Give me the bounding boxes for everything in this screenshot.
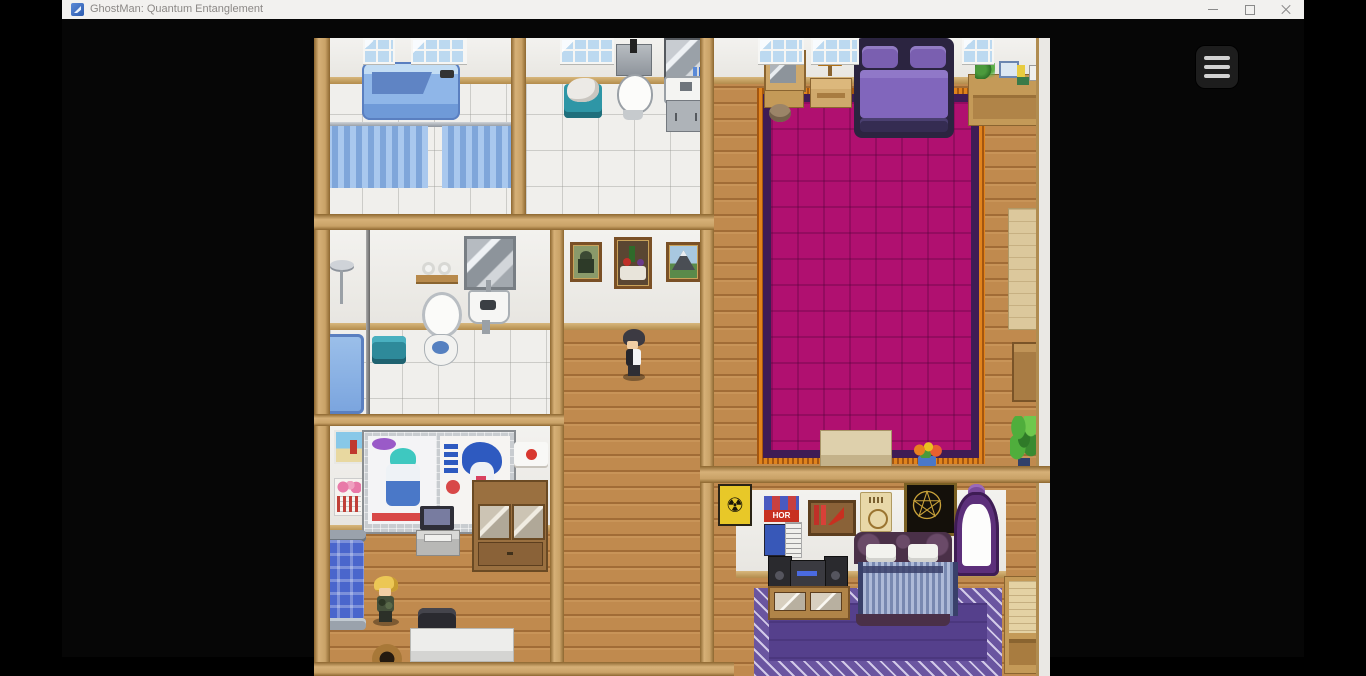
toilet-tank xyxy=(616,44,652,76)
pentagram-icon xyxy=(909,487,945,523)
torso-vest xyxy=(626,349,641,366)
beach-figure xyxy=(350,440,357,454)
title-bubble xyxy=(372,438,396,450)
wall-left-outer xyxy=(314,38,330,676)
horror-title: HOR xyxy=(764,510,799,522)
desk-plant xyxy=(975,63,995,79)
footboard xyxy=(860,118,948,132)
camo-torso xyxy=(377,596,394,612)
mirror-glass-white xyxy=(962,504,991,566)
horror-posters: HOR xyxy=(764,496,799,558)
window-3 xyxy=(560,38,614,64)
wall-horizontal-2 xyxy=(314,414,564,426)
stereo-table-body xyxy=(768,586,850,620)
app-icon xyxy=(71,3,84,16)
wall-right-outer xyxy=(1036,38,1050,676)
office-chair xyxy=(418,608,456,630)
pillow-white-2 xyxy=(908,544,938,562)
minimize-icon xyxy=(1208,9,1218,10)
anime-figure xyxy=(386,464,420,506)
face xyxy=(627,341,638,349)
poster-list xyxy=(785,522,802,558)
window-title: GhostMan: Quantum Entanglement xyxy=(90,0,263,19)
toilet-water xyxy=(432,341,449,354)
leaning-book xyxy=(828,507,844,525)
dark-haired-character xyxy=(620,329,648,381)
tall-board xyxy=(1008,208,1038,330)
screen xyxy=(424,509,450,525)
urinal-drain xyxy=(480,300,496,310)
striped-bed xyxy=(854,532,952,630)
keyboard xyxy=(424,534,452,542)
parchment-script xyxy=(869,497,883,503)
footboard-dark xyxy=(856,614,950,626)
mountain-painting xyxy=(666,242,701,282)
shower-pole xyxy=(366,218,370,416)
glass-pane-1 xyxy=(478,504,511,540)
red-book-1 xyxy=(814,505,819,525)
wall-bottom xyxy=(314,662,734,676)
window-6 xyxy=(962,38,994,64)
blond-character xyxy=(370,576,402,626)
red-stamp xyxy=(446,480,460,494)
urinal xyxy=(468,290,510,324)
bedroom-desk xyxy=(968,74,1042,126)
window-2 xyxy=(411,38,467,64)
parchment-poster xyxy=(860,492,892,532)
paper-sheet xyxy=(1009,581,1039,633)
receiver-display xyxy=(797,571,817,576)
red-book-2 xyxy=(821,505,826,525)
drawer-handle xyxy=(507,552,513,555)
window-4 xyxy=(758,38,804,64)
still-life-painting xyxy=(614,237,652,289)
shelf-board xyxy=(416,275,458,282)
tp-roll-1 xyxy=(422,262,435,275)
receiver xyxy=(790,560,826,588)
tank-bottle xyxy=(630,39,637,53)
envelope-poster xyxy=(514,442,548,466)
minimize-button[interactable] xyxy=(1200,0,1226,19)
table-shelf-1 xyxy=(774,592,806,611)
grapes xyxy=(637,259,644,266)
blue-quilt xyxy=(324,540,364,620)
speaker-right xyxy=(824,556,848,588)
bathtub-middle xyxy=(324,334,364,414)
poster-photos xyxy=(764,496,799,510)
close-button[interactable] xyxy=(1273,0,1299,19)
display-cabinet xyxy=(472,480,548,572)
urinal-pipe xyxy=(486,280,491,292)
urinal-outlet xyxy=(482,320,490,334)
pillow-white-1 xyxy=(866,544,896,562)
striped-blanket xyxy=(858,562,958,616)
monitor xyxy=(420,506,454,530)
kanji-column xyxy=(444,444,458,474)
window-1 xyxy=(363,38,395,64)
yellow-book xyxy=(1017,65,1025,77)
window-5 xyxy=(811,38,859,64)
tablecloth xyxy=(620,266,646,280)
wall-divider-top xyxy=(511,38,526,230)
wall-divider-hallway-right xyxy=(700,38,714,676)
wood-bench xyxy=(820,430,892,468)
glass-pane-2 xyxy=(512,504,545,540)
flower-pot xyxy=(910,442,944,468)
maximize-button[interactable] xyxy=(1237,0,1263,19)
desk-drawer xyxy=(973,95,1037,119)
portrait-body xyxy=(578,259,594,273)
game-canvas[interactable]: ☢ HOR xyxy=(314,38,1050,676)
game-menu-button[interactable] xyxy=(1196,46,1238,88)
portrait-painting xyxy=(570,242,602,282)
bathtub-water xyxy=(372,72,432,94)
photo-frame xyxy=(999,61,1019,78)
legs xyxy=(628,365,640,376)
app-window: GhostMan: Quantum Entanglement xyxy=(62,0,1304,657)
parchment-seal xyxy=(868,509,888,529)
blanket-band xyxy=(863,566,943,573)
teal-basket xyxy=(372,336,406,364)
bottle-blue-2 xyxy=(693,67,697,76)
laundry-basket xyxy=(564,84,602,118)
radiation-poster: ☢ xyxy=(718,484,752,526)
bathtub-faucet xyxy=(440,70,454,78)
wall-divider-hallway-left xyxy=(550,214,564,676)
apple xyxy=(623,258,631,266)
ornate-purple-mirror xyxy=(954,484,999,576)
purple-double-bed xyxy=(854,38,954,138)
bathtub-top xyxy=(362,62,460,120)
speaker-left xyxy=(768,556,792,588)
nightstand xyxy=(810,78,852,108)
toilet-bowl xyxy=(424,334,458,366)
tp-roll-2 xyxy=(438,262,451,275)
hamburger-icon-bar-3 xyxy=(1204,74,1230,78)
maximize-icon xyxy=(1245,5,1255,15)
red-circle xyxy=(526,449,537,460)
nightstand-drawer xyxy=(817,93,845,98)
carpet-field xyxy=(771,102,971,450)
pentagram-tapestry xyxy=(904,482,957,536)
shower-head xyxy=(330,256,356,274)
snow-cap xyxy=(680,250,687,256)
plant-leaves xyxy=(1010,416,1038,460)
wall-horizontal-1 xyxy=(314,214,714,230)
table-shelf-2 xyxy=(810,592,842,611)
green-books xyxy=(1017,77,1029,85)
houseplant xyxy=(1010,416,1038,468)
letterbox-area: ☢ HOR xyxy=(62,19,1304,657)
book-wall-shelf xyxy=(808,500,856,536)
cabinet-handle-2 xyxy=(695,113,697,121)
toilet-base xyxy=(623,110,643,120)
lamp-stem xyxy=(828,66,832,76)
face-2 xyxy=(379,588,391,596)
shower-curtain-left xyxy=(326,126,428,188)
toilet-lid-open xyxy=(422,292,462,338)
cabinet-handle-1 xyxy=(675,113,677,121)
flowers xyxy=(912,442,942,458)
sink-faucet xyxy=(680,82,692,91)
pillow-right xyxy=(910,46,946,68)
pillow-left xyxy=(862,46,898,68)
shower-head-disc xyxy=(330,260,354,270)
hamburger-icon xyxy=(1204,56,1230,60)
toilet-paper-shelf xyxy=(416,262,458,282)
bed-blanket xyxy=(860,70,948,118)
magenta-carpet xyxy=(757,88,985,464)
hamburger-icon-bar-2 xyxy=(1204,65,1230,69)
legs-2 xyxy=(379,611,392,622)
flower-calendar xyxy=(334,478,364,516)
cabinet-drawers xyxy=(478,542,543,566)
shower-curtain-right xyxy=(442,126,514,188)
poster-blue xyxy=(764,524,786,556)
stereo-table xyxy=(768,556,846,616)
toilet-seat xyxy=(617,74,653,114)
stool xyxy=(769,104,791,122)
calendar-grid xyxy=(337,496,361,512)
wall-horizontal-3 xyxy=(700,466,1050,483)
flower-art xyxy=(337,481,361,493)
shower-hose xyxy=(340,270,343,304)
computer-desk xyxy=(416,506,458,554)
title-bar[interactable]: GhostMan: Quantum Entanglement xyxy=(62,0,1304,20)
towels xyxy=(567,78,599,102)
